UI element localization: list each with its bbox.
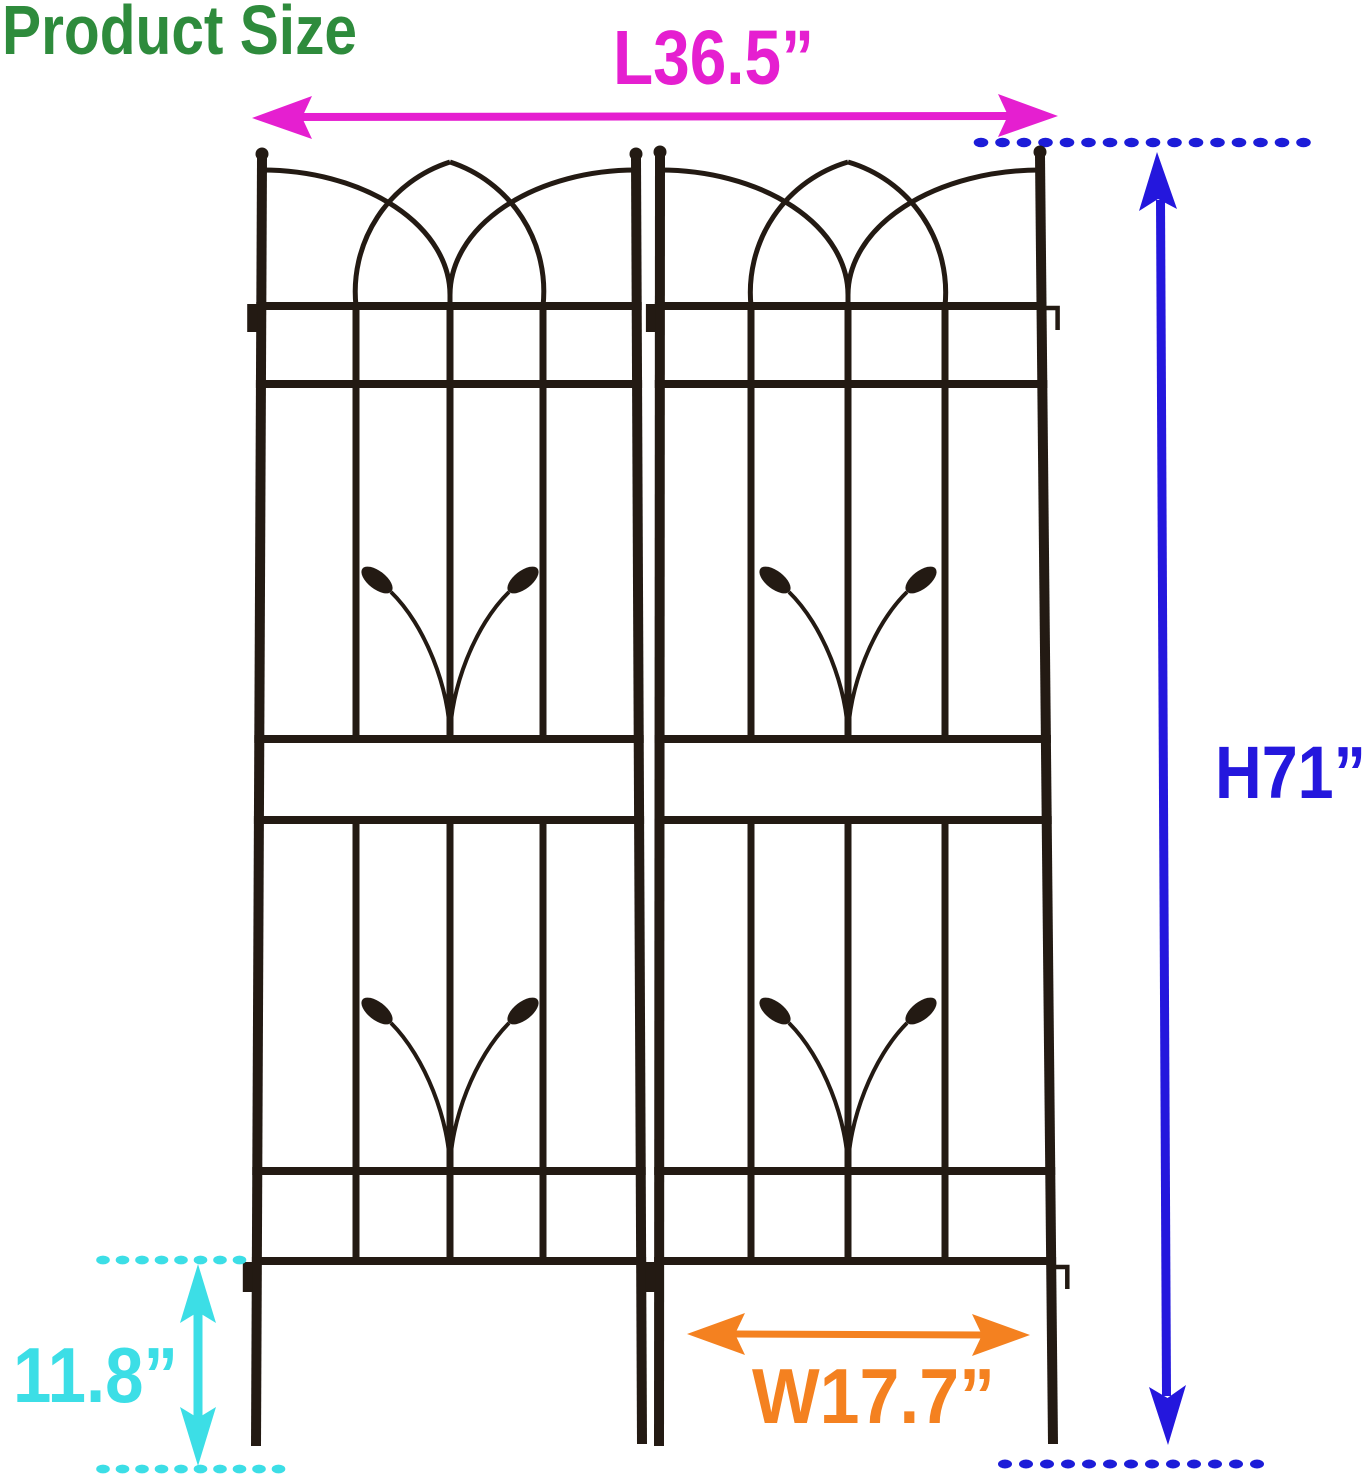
svg-text:Product Size: Product Size (2, 0, 357, 69)
svg-text:W17.7”: W17.7” (752, 1352, 995, 1440)
svg-text:11.8”: 11.8” (13, 1331, 178, 1419)
svg-text:L36.5”: L36.5” (613, 15, 814, 101)
svg-text:H71”: H71” (1215, 731, 1366, 814)
